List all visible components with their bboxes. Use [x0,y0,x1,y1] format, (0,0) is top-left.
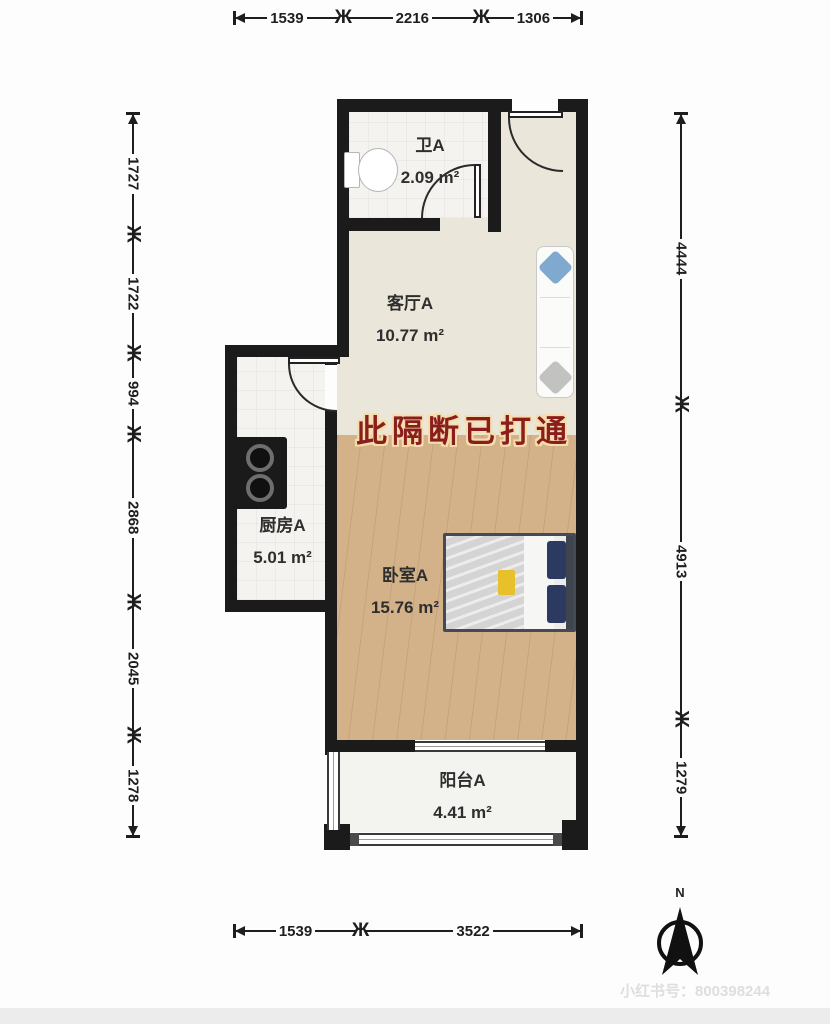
dim-tick-icon: Ж [128,426,138,443]
kitchen-label: 厨房A 5.01 m² [225,510,340,575]
window-cap [350,833,359,846]
dim-label: 3522 [453,923,492,940]
wall [562,820,588,850]
sofa-pillow-gray [538,360,573,395]
sofa-icon [536,246,574,398]
living-room-label: 客厅A 10.77 m² [340,288,480,353]
sofa-seam [540,297,570,298]
bathroom-label: 卫A 2.09 m² [370,130,490,195]
bed-yellow-item [498,570,515,595]
sofa-seam [540,347,570,348]
dim-top: 1539 Ж 2216 Ж 1306 [233,7,583,29]
room-area: 15.76 m² [335,592,475,624]
wall [337,218,440,231]
dim-label: 4913 [673,542,690,581]
wall [576,99,588,836]
room-name: 客厅A [340,288,480,320]
room-name: 厨房A [225,510,340,542]
dim-end-icon [674,835,688,838]
dim-label: 2868 [125,498,142,537]
wall [337,99,512,112]
dim-end-icon [126,112,140,115]
stove-icon [233,437,287,509]
dim-label: 1279 [673,758,690,797]
stove-burner [246,474,274,502]
dim-label: 1539 [276,923,315,940]
dim-tick-icon: Ж [676,395,686,412]
dim-label: 1539 [267,10,306,27]
dim-label: 2045 [125,649,142,688]
dim-tick-icon: Ж [128,225,138,242]
bedroom-label: 卧室A 15.76 m² [335,560,475,625]
dim-tick-icon: Ж [128,726,138,743]
dim-label: 4444 [673,239,690,278]
dim-right: 4444 Ж 4913 Ж 1279 [669,112,693,838]
floorplan-image: 卫A 2.09 m² 客厅A 10.77 m² 厨房A 5.01 m² 卧室A … [0,0,830,1024]
wall [337,740,415,752]
room-area: 10.77 m² [340,320,480,352]
dim-end-icon [580,11,583,25]
dim-label: 1727 [125,154,142,193]
dim-label: 1722 [125,274,142,313]
compass-north-label: N [648,885,712,900]
balcony-front-window [350,833,562,846]
sofa-pillow-blue [538,250,573,285]
room-area: 2.09 m² [370,162,490,194]
wall [225,345,337,357]
room-name: 卧室A [335,560,475,592]
window-cap [553,833,562,846]
room-name: 卫A [370,130,490,162]
dim-label: 1306 [514,10,553,27]
balcony-side-window [327,752,340,830]
dim-left: 1727 Ж 1722 Ж 994 Ж 2868 Ж 2045 Ж 1278 [121,112,145,838]
bed-headboard [566,536,573,629]
partition-annotation: 此隔断已打通 [356,406,572,451]
bed-pillow [547,585,566,623]
kitchen-door-leaf [288,357,340,364]
dim-end-icon [580,924,583,938]
wall [545,740,576,752]
dim-label: 1278 [125,766,142,805]
bed-pillow [547,541,566,579]
balcony-label: 阳台A 4.41 m² [390,765,535,830]
balcony-door-window [415,741,545,752]
dim-label: 2216 [393,10,432,27]
dim-tick-icon: Ж [128,593,138,610]
entry-door-leaf [508,111,563,118]
compass-icon [648,901,712,983]
xiaohongshu-id-watermark: 小红书号：800398244 [620,980,770,1001]
stove-burner [246,444,274,472]
bottom-band [0,1008,830,1024]
dim-label: 994 [125,378,142,409]
dim-end-icon [126,835,140,838]
dim-end-icon [233,11,236,25]
dim-end-icon [674,112,688,115]
dim-tick-icon: Ж [128,345,138,362]
room-area: 5.01 m² [225,542,340,574]
wall [225,600,337,612]
compass: N [648,885,712,985]
dim-tick-icon: Ж [676,710,686,727]
room-area: 4.41 m² [390,797,535,829]
dim-end-icon [233,924,236,938]
dim-bottom: 1539 Ж 3522 [233,920,583,942]
room-name: 阳台A [390,765,535,797]
